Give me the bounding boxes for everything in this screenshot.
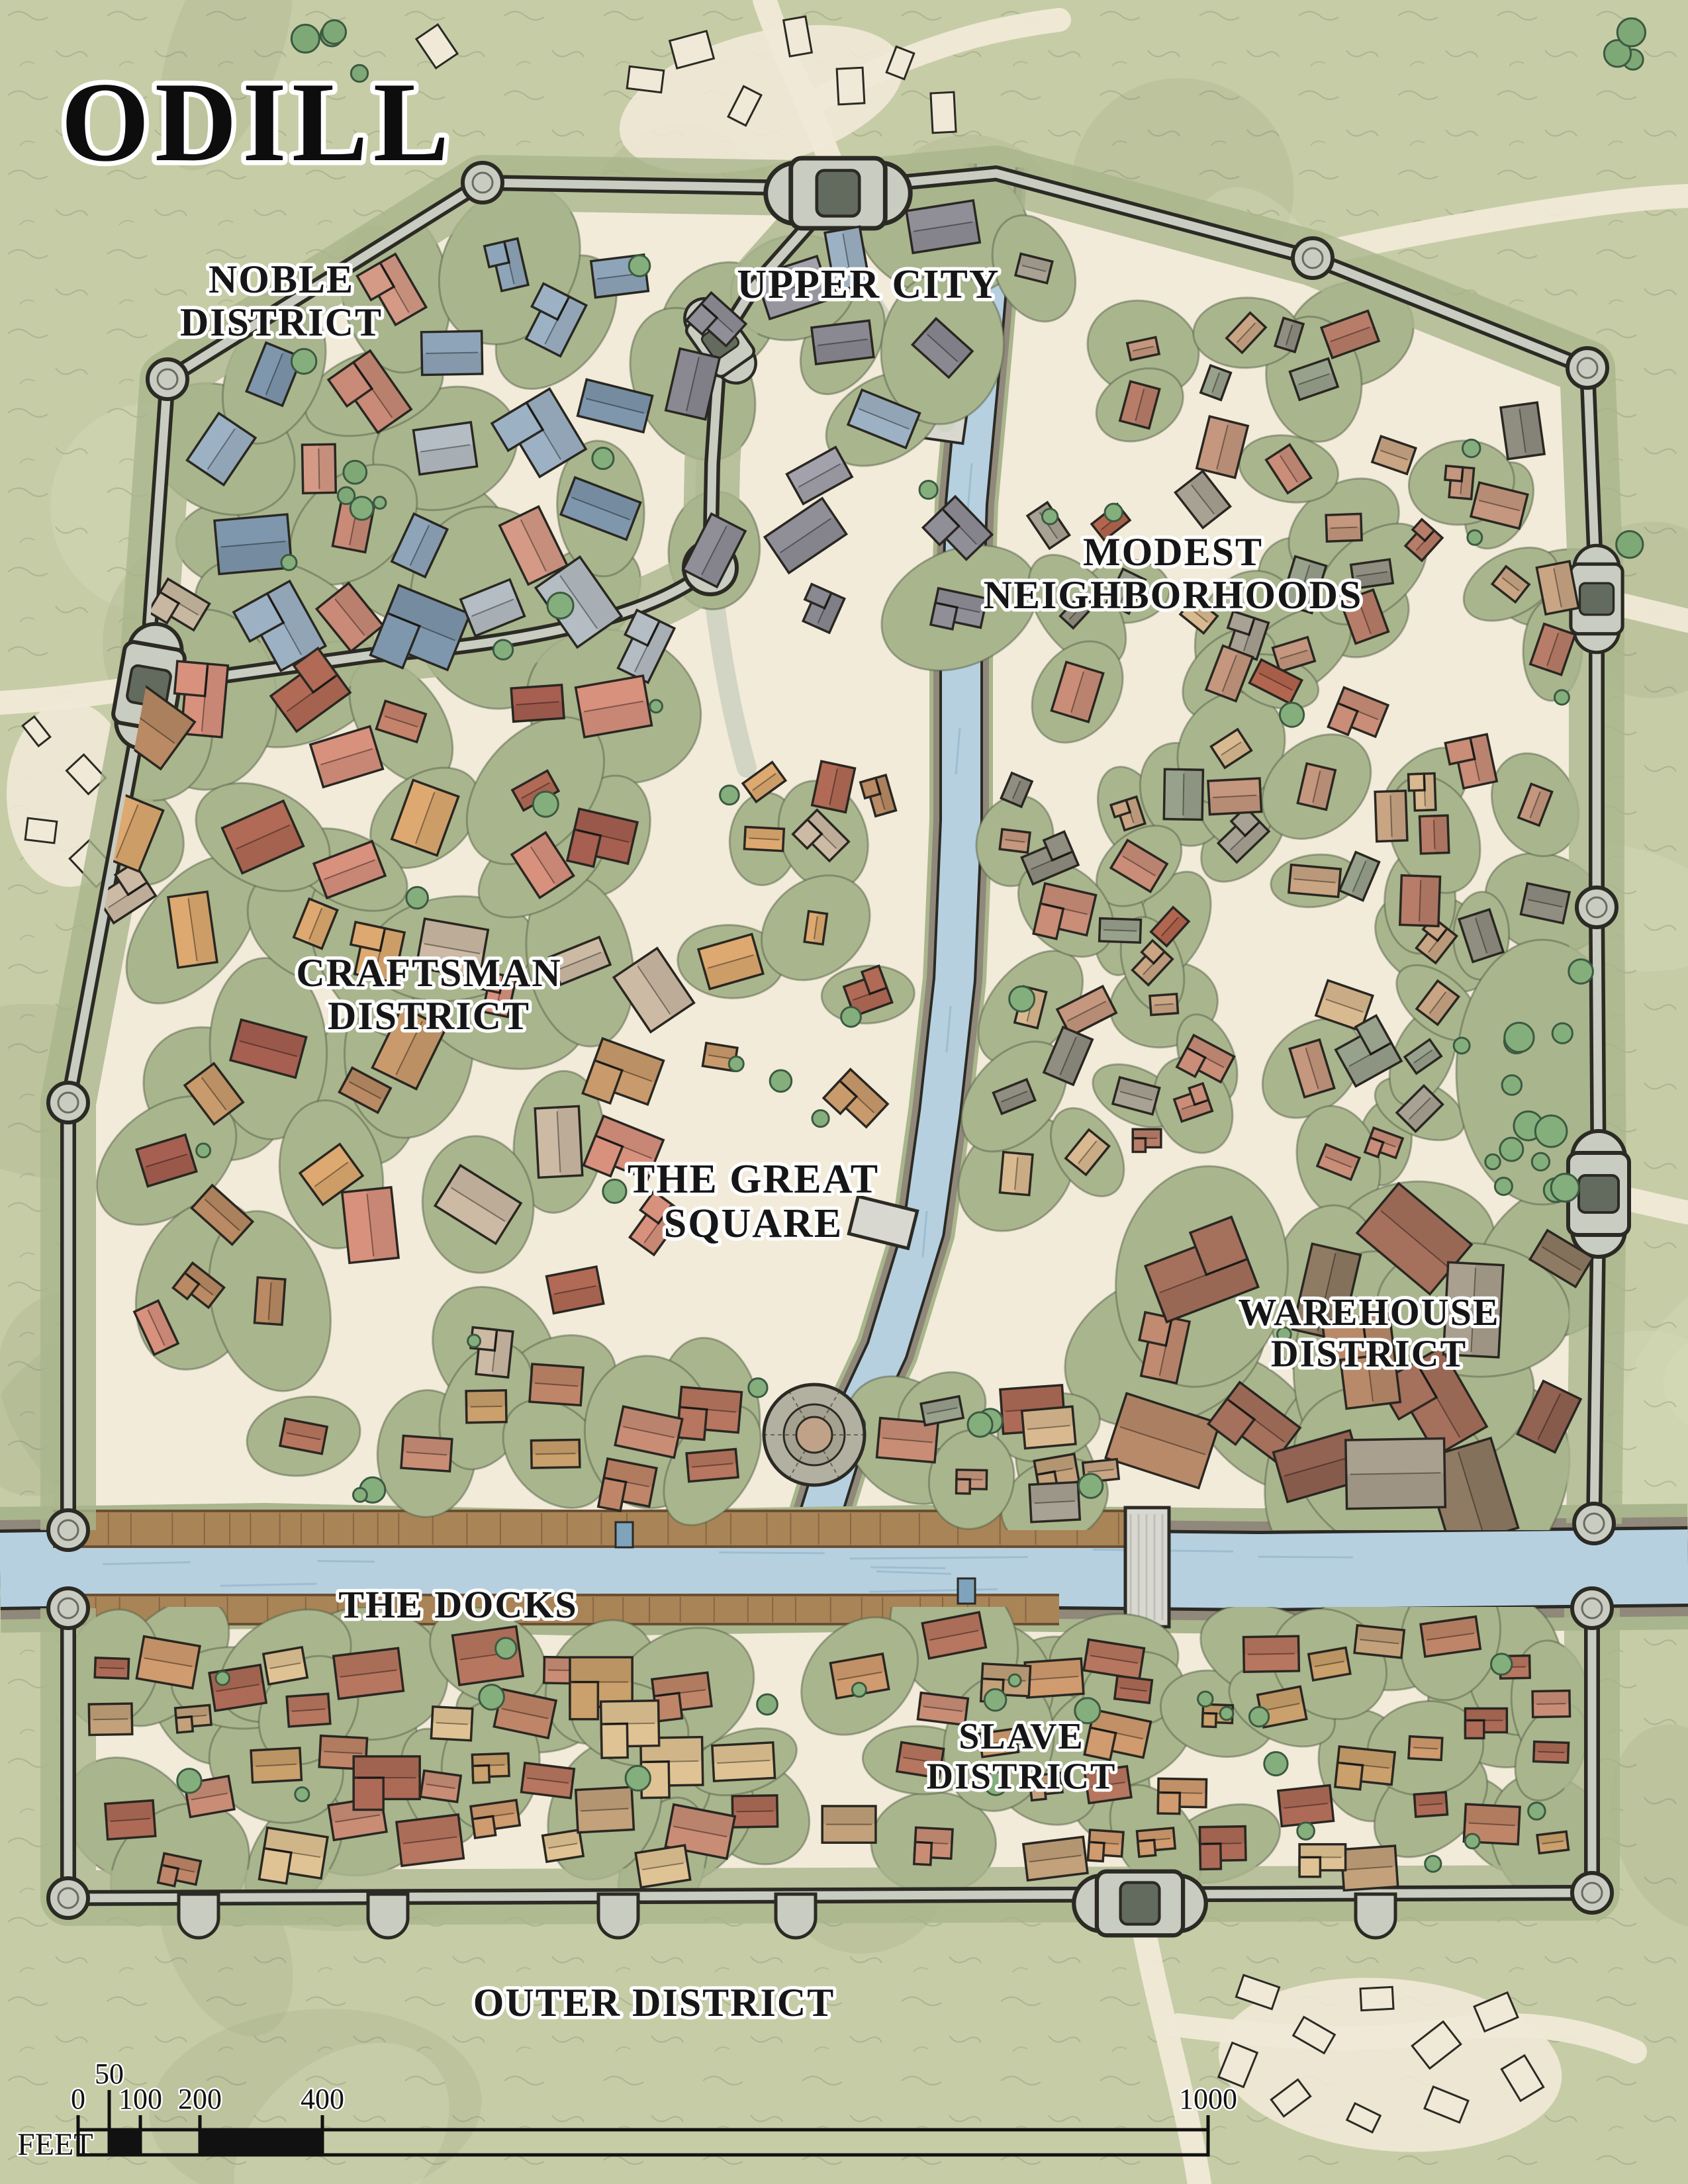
building-wing — [353, 1778, 383, 1809]
gate-roof — [817, 171, 859, 216]
roof-ridge — [645, 1761, 698, 1762]
scale-segment — [200, 2130, 322, 2155]
tree — [1552, 1023, 1572, 1043]
district-label-craftsman-district: DISTRICT — [328, 994, 530, 1038]
tree — [1485, 1154, 1500, 1169]
tree — [629, 255, 650, 277]
gatehouse — [766, 158, 911, 228]
tree — [1502, 1075, 1522, 1095]
tree — [1569, 960, 1593, 984]
building — [89, 1704, 132, 1735]
tree — [406, 887, 428, 909]
roof-shade — [1183, 770, 1203, 820]
building — [287, 1694, 330, 1727]
building — [420, 1770, 461, 1801]
water-streak — [1258, 1557, 1353, 1557]
district-label-outer-district: OUTER DISTRICT — [473, 1981, 835, 2025]
building-wing — [1138, 1840, 1156, 1856]
roof-ridge — [99, 1668, 124, 1668]
building-wing — [914, 1842, 932, 1864]
roof-ridge — [1538, 1752, 1564, 1752]
building — [1409, 1737, 1442, 1760]
tree — [1425, 1856, 1441, 1872]
tree — [1198, 1692, 1213, 1706]
roof-ridge — [1536, 1704, 1566, 1704]
building — [1346, 1438, 1446, 1508]
gate-roof — [1579, 1175, 1618, 1212]
roof-ridge — [536, 1453, 576, 1454]
wall-tower — [463, 163, 502, 203]
wall-tower — [48, 1878, 88, 1918]
tree — [626, 1766, 650, 1790]
roof-shade — [531, 1439, 579, 1454]
building — [397, 1815, 463, 1866]
wall-bastion — [598, 1894, 638, 1938]
roof-shade — [353, 1756, 420, 1778]
building — [1537, 1831, 1568, 1853]
tree — [729, 1056, 743, 1071]
tree — [533, 792, 558, 817]
building-wing — [570, 1682, 598, 1719]
building — [732, 1796, 777, 1827]
building — [1375, 791, 1407, 842]
building — [535, 1106, 583, 1177]
hamlet-building — [931, 92, 956, 133]
roof-ridge — [471, 1406, 502, 1407]
building — [1341, 1846, 1398, 1890]
tree — [1532, 1153, 1549, 1170]
roof-shade — [1434, 815, 1449, 853]
district-label-slave-district: DISTRICT — [927, 1756, 1117, 1797]
building — [342, 1187, 399, 1263]
building — [712, 1743, 775, 1781]
building-wing — [1445, 466, 1463, 481]
tree — [852, 1683, 866, 1697]
building — [1000, 829, 1030, 852]
wall-bastion — [776, 1894, 816, 1938]
tree — [650, 700, 663, 713]
district-label-warehouse-district: WAREHOUSE — [1238, 1291, 1499, 1334]
building — [1208, 778, 1262, 815]
tree — [1105, 504, 1122, 521]
tree — [281, 555, 297, 570]
wall-tower — [1577, 887, 1617, 927]
building — [1000, 1152, 1033, 1195]
roof-shade — [1532, 1691, 1570, 1704]
tree — [1535, 1115, 1567, 1147]
building — [1022, 1406, 1076, 1448]
building — [511, 685, 564, 722]
building — [547, 1267, 604, 1313]
roof-shade — [1465, 1804, 1520, 1826]
tree — [1495, 1177, 1512, 1195]
building — [1025, 1659, 1084, 1698]
wall-bastion — [368, 1894, 408, 1938]
tree — [353, 1488, 367, 1502]
building — [1501, 402, 1544, 459]
building — [1354, 1625, 1404, 1658]
tree — [757, 1694, 778, 1715]
building — [209, 1665, 266, 1711]
tree — [812, 1111, 829, 1127]
tree — [592, 448, 614, 469]
roof-shade — [915, 1827, 953, 1844]
round-plaza-layer — [764, 1385, 865, 1485]
district-label-the-docks: THE DOCKS — [338, 1583, 577, 1626]
district-label-noble-district: DISTRICT — [180, 300, 383, 344]
tree — [603, 1179, 626, 1203]
district-label-noble-district: NOBLE — [209, 257, 354, 301]
building — [334, 1648, 404, 1699]
building — [1023, 1837, 1088, 1880]
tree — [1554, 690, 1569, 705]
tree — [496, 1638, 516, 1659]
building-wing — [1299, 1857, 1320, 1876]
wall-tower — [1293, 238, 1333, 278]
building — [1420, 815, 1449, 854]
building — [812, 320, 874, 364]
tree — [720, 786, 739, 805]
building — [422, 331, 483, 375]
building — [1164, 769, 1203, 819]
tree — [841, 1007, 861, 1027]
tree — [1617, 19, 1645, 46]
tree — [1617, 531, 1643, 558]
tree — [1220, 1707, 1233, 1720]
building-wing — [1088, 1842, 1104, 1861]
hamlet-building — [1360, 1987, 1393, 2010]
roof-shade — [1029, 1482, 1079, 1503]
hamlet-building — [627, 66, 664, 92]
building — [1115, 1676, 1152, 1703]
tree — [479, 1685, 504, 1710]
building — [543, 1830, 584, 1862]
tree — [547, 592, 573, 618]
building — [168, 891, 217, 968]
district-label-modest-neighborhoods: MODEST — [1083, 530, 1263, 574]
wall-tower — [48, 1588, 88, 1628]
roof-shade — [1299, 1844, 1345, 1858]
building — [263, 1647, 307, 1684]
building — [1133, 1129, 1161, 1152]
river-water — [0, 1566, 1688, 1573]
roof-ridge — [961, 1479, 983, 1480]
roof-shade — [1346, 1473, 1446, 1508]
map-title: ODILL — [61, 60, 454, 185]
roof-shade — [432, 1707, 473, 1725]
tree — [984, 1689, 1006, 1711]
building — [804, 911, 827, 944]
building — [1414, 1792, 1447, 1817]
tree — [197, 1144, 211, 1158]
district-label-slave-district: SLAVE — [959, 1716, 1084, 1757]
building — [414, 422, 477, 475]
building-wing — [1465, 1720, 1483, 1738]
roof-ridge — [93, 1719, 128, 1719]
tree — [374, 496, 386, 508]
tree — [1009, 1674, 1021, 1686]
tree — [1468, 530, 1482, 545]
roof-shade — [570, 1657, 632, 1682]
water-streak — [870, 1567, 945, 1568]
tree — [338, 487, 354, 504]
roof-shade — [1158, 1778, 1207, 1793]
roof-shade — [472, 1753, 508, 1766]
roof-ridge — [1248, 1654, 1295, 1655]
building — [401, 1435, 452, 1471]
building-wing — [1158, 1792, 1180, 1813]
building-wing — [176, 1717, 193, 1733]
wall-bastion — [179, 1894, 218, 1938]
boat — [958, 1578, 975, 1604]
building — [1243, 1636, 1299, 1672]
tree — [291, 349, 316, 373]
tree — [295, 1788, 309, 1801]
tree — [177, 1769, 201, 1793]
building — [744, 827, 784, 850]
building — [531, 1439, 579, 1468]
gatehouse — [1571, 545, 1622, 653]
tree — [493, 640, 512, 659]
building — [1289, 865, 1340, 897]
roof-shade — [1390, 791, 1407, 841]
building — [1326, 514, 1362, 541]
tree — [968, 1412, 992, 1437]
building — [254, 1277, 285, 1324]
tree — [1528, 1803, 1546, 1820]
roof-ridge — [426, 353, 478, 353]
building — [530, 1364, 583, 1405]
tree — [468, 1335, 481, 1347]
map-canvas: ODILL NOBLEDISTRICTUPPER CITYMODESTNEIGH… — [0, 0, 1688, 2184]
boat — [616, 1522, 633, 1547]
tree — [1500, 1138, 1523, 1161]
roof-shade — [1243, 1636, 1298, 1655]
building-wing — [175, 661, 208, 696]
district-label-the-great-square: SQUARE — [664, 1201, 843, 1246]
building-wing — [1202, 1713, 1216, 1727]
roof-shade — [318, 444, 336, 492]
roof-shade — [466, 1390, 506, 1407]
building — [1150, 994, 1178, 1015]
building-wing — [351, 922, 385, 950]
building — [302, 444, 336, 493]
building — [635, 1845, 690, 1888]
plaza-center — [796, 1417, 832, 1453]
roof-shade — [732, 1796, 777, 1812]
building-wing — [473, 1765, 489, 1782]
building — [1532, 1691, 1570, 1717]
building-wing — [259, 1848, 291, 1884]
building-wing — [1445, 738, 1474, 764]
water-streak — [719, 1553, 824, 1553]
building — [214, 514, 292, 574]
building — [1400, 876, 1440, 927]
building — [576, 676, 652, 737]
tree — [344, 461, 367, 484]
wall-tower — [48, 1510, 88, 1550]
scale-tick-label: 200 — [178, 2083, 222, 2115]
roof-shade — [822, 1806, 876, 1825]
wall-tower — [148, 359, 187, 399]
roof-ridge — [1183, 774, 1184, 815]
water-streak — [317, 1561, 374, 1562]
tree — [919, 480, 937, 498]
building — [136, 1636, 200, 1688]
building — [1309, 1648, 1350, 1680]
tree — [770, 1070, 792, 1092]
wall-tower — [1572, 1588, 1612, 1628]
wall-bastion — [1356, 1894, 1395, 1938]
building — [431, 1707, 473, 1741]
tree — [322, 21, 346, 44]
roof-shade — [557, 1106, 583, 1176]
tree — [1465, 1834, 1479, 1848]
tree — [1264, 1752, 1288, 1775]
roof-shade — [1424, 774, 1436, 811]
scale-tick-label: 400 — [301, 2083, 344, 2115]
tree — [1505, 1023, 1534, 1052]
building — [906, 201, 980, 253]
tree — [291, 24, 319, 52]
tree — [1078, 1474, 1102, 1498]
city-map: ODILL NOBLEDISTRICTUPPER CITYMODESTNEIGH… — [0, 0, 1688, 2184]
tree — [1551, 1174, 1579, 1202]
building — [576, 1787, 634, 1833]
roof-shade — [576, 1787, 633, 1811]
scale-tick-label: 1000 — [1179, 2083, 1237, 2115]
building — [466, 1390, 506, 1423]
building-wing — [1335, 1762, 1363, 1790]
roof-shade — [1100, 919, 1141, 931]
tree — [216, 1671, 230, 1685]
wall-tower — [1574, 1504, 1614, 1543]
tree — [1297, 1823, 1315, 1840]
scale-tick-label: 0 — [71, 2083, 85, 2115]
tree — [1249, 1707, 1268, 1726]
roof-ridge — [605, 1723, 655, 1724]
tree — [1454, 1038, 1470, 1054]
district-label-warehouse-district: DISTRICT — [1271, 1332, 1467, 1375]
roof-ridge — [1204, 1843, 1242, 1844]
roof-shade — [1133, 1129, 1161, 1138]
roof-shade — [957, 1470, 987, 1480]
building-wing — [1200, 1844, 1221, 1870]
gate-roof — [1580, 583, 1614, 615]
scale-segment — [109, 2130, 140, 2155]
building — [1421, 1617, 1480, 1657]
district-label-the-great-square: THE GREAT — [628, 1157, 879, 1202]
roof-ridge — [737, 1811, 774, 1811]
tree — [1042, 509, 1057, 524]
district-label-modest-neighborhoods: NEIGHBORHOODS — [984, 573, 1363, 617]
tree — [1009, 986, 1035, 1011]
wall-tower — [48, 1083, 88, 1122]
gatehouse — [1074, 1872, 1206, 1936]
roof-shade — [1327, 527, 1362, 541]
building-wing — [957, 1479, 970, 1494]
building — [522, 1763, 575, 1798]
tree — [749, 1379, 767, 1397]
building — [105, 1800, 156, 1839]
hamlet-building — [25, 818, 57, 843]
district-label-craftsman-district: CRAFTSMAN — [296, 951, 561, 995]
district-label-upper-city: UPPER CITY — [737, 262, 1000, 307]
roof-ridge — [1331, 527, 1358, 528]
building-wing — [601, 1723, 628, 1758]
roof-shade — [89, 1704, 132, 1719]
roof-ridge — [318, 449, 319, 489]
roof-ridge — [1162, 1793, 1202, 1794]
roof-shade — [1199, 1827, 1245, 1844]
building — [822, 1806, 876, 1843]
building — [1029, 1482, 1080, 1522]
wall-tower — [1572, 1873, 1612, 1913]
wall-tower — [1568, 348, 1607, 388]
roof-shade — [422, 353, 483, 375]
gate-roof — [1121, 1883, 1160, 1925]
roof-shade — [601, 1701, 659, 1725]
building — [251, 1748, 301, 1782]
tree — [1462, 439, 1480, 457]
building-wing — [1133, 1138, 1145, 1152]
tree — [1491, 1654, 1511, 1674]
hamlet-building — [837, 68, 865, 105]
building — [686, 1449, 738, 1481]
scale-tick-label: 100 — [118, 2083, 162, 2115]
building — [1534, 1742, 1569, 1763]
scale-unit-label: FEET — [17, 2127, 93, 2162]
building — [1100, 919, 1141, 943]
roof-shade — [1465, 1708, 1507, 1720]
building-wing — [473, 1816, 496, 1838]
tree — [1280, 703, 1303, 727]
building — [95, 1658, 128, 1678]
building-wing — [598, 1478, 626, 1511]
roof-shade — [1419, 876, 1440, 927]
building-wing — [1409, 774, 1425, 791]
building — [1278, 1786, 1334, 1827]
